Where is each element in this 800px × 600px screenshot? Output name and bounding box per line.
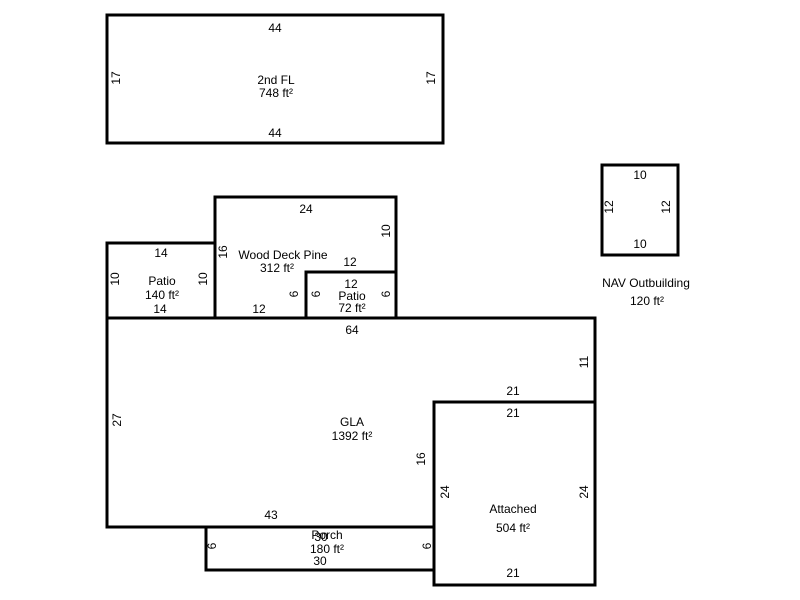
outbuilding-name: NAV Outbuilding: [602, 276, 690, 290]
attached-garage-outline: [434, 402, 595, 585]
patio-small-area: 72 ft²: [338, 301, 365, 315]
gla-dim-right: 11: [577, 355, 591, 368]
attached-area: 504 ft²: [496, 521, 530, 535]
attached-dim-top: 21: [506, 406, 520, 420]
patio-large-dim-top: 14: [154, 246, 168, 260]
attached-dim-left: 24: [438, 485, 452, 499]
wood-deck-dim-left: 16: [216, 245, 230, 259]
outbuilding-dim-right: 12: [659, 200, 673, 214]
attached-name: Attached: [489, 502, 536, 516]
floor-plan-canvas: 44 17 2nd FL 748 ft² 17 44 10 12 12 10 N…: [0, 0, 800, 600]
second-floor-dim-right: 17: [424, 71, 438, 85]
porch-dim-right: 6: [420, 542, 434, 549]
gla-dim-bottom: 43: [264, 508, 278, 522]
attached-dim-bottom: 21: [506, 566, 520, 580]
patio-large-name: Patio: [148, 274, 176, 288]
porch-dim-left: 6: [205, 542, 219, 549]
second-floor-dim-left: 17: [109, 71, 123, 85]
second-floor-dim-bottom: 44: [268, 126, 282, 140]
gla-dim-notch-top: 21: [506, 384, 520, 398]
attached-dim-right: 24: [577, 485, 591, 499]
patio-large-dim-right: 10: [196, 272, 210, 286]
gla-dim-left: 27: [110, 413, 124, 427]
wood-deck-dim-right: 10: [379, 224, 393, 238]
wood-deck-dim-bottom: 12: [252, 302, 266, 316]
second-floor-name: 2nd FL: [257, 73, 295, 87]
wood-deck-dim-top: 24: [299, 202, 313, 216]
wood-deck-dim-step-top: 12: [343, 255, 357, 269]
patio-large-area: 140 ft²: [145, 288, 179, 302]
gla-name: GLA: [340, 415, 364, 429]
gla-dim-notch-side: 16: [414, 452, 428, 466]
floor-plan-sketch: 44 17 2nd FL 748 ft² 17 44 10 12 12 10 N…: [0, 0, 800, 600]
gla-area: 1392 ft²: [332, 429, 373, 443]
wood-deck-dim-step-side: 6: [287, 290, 301, 297]
gla-dim-top: 64: [345, 323, 359, 337]
patio-small-dim-left: 6: [309, 290, 323, 297]
outbuilding-dim-bottom: 10: [633, 237, 647, 251]
patio-large-dim-bottom: 14: [153, 302, 167, 316]
outbuilding-area: 120 ft²: [630, 294, 664, 308]
porch-dim-bottom: 30: [313, 554, 327, 568]
patio-large-dim-left: 10: [108, 272, 122, 286]
second-floor-dim-top: 44: [268, 21, 282, 35]
outbuilding-dim-left: 12: [602, 200, 616, 214]
patio-small-dim-right: 6: [379, 290, 393, 297]
second-floor-area: 748 ft²: [259, 86, 293, 100]
wood-deck-area: 312 ft²: [260, 261, 294, 275]
wood-deck-name: Wood Deck Pine: [238, 248, 327, 262]
outbuilding-dim-top: 10: [633, 168, 647, 182]
